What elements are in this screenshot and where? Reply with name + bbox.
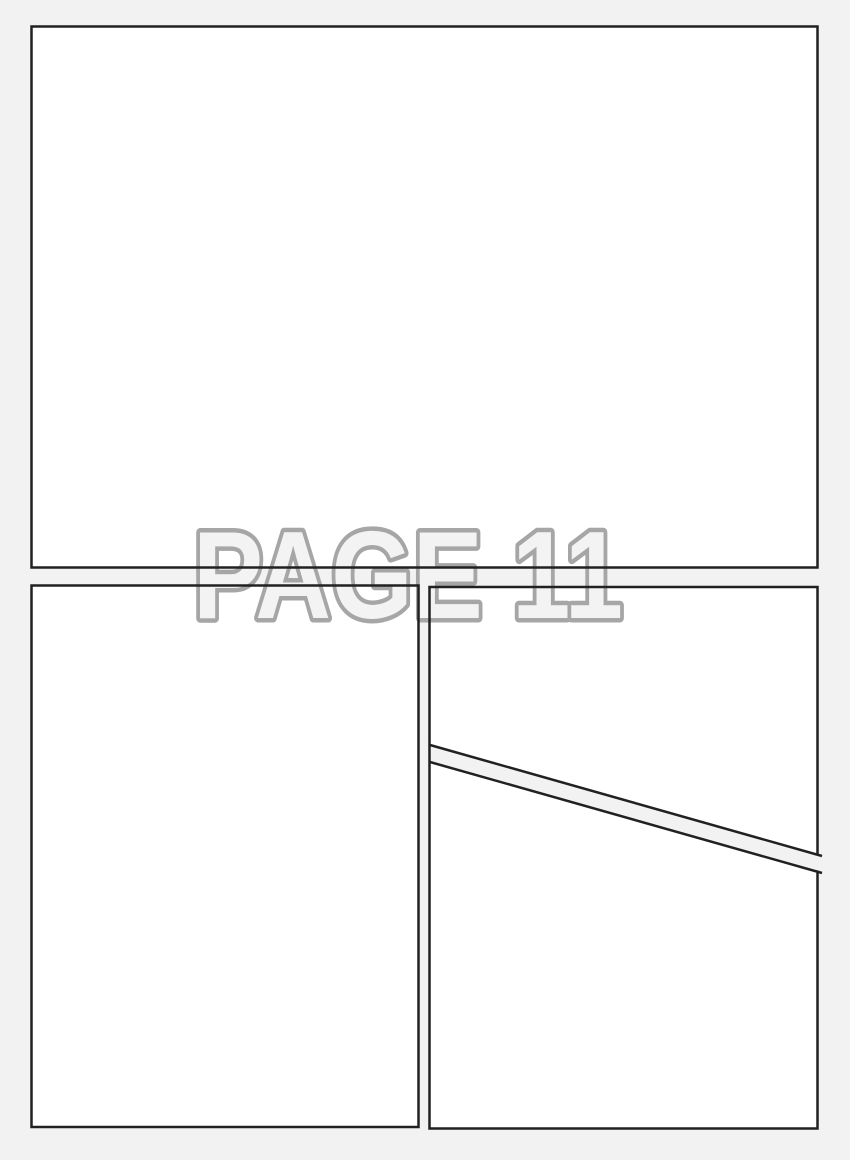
panel-bottom-left[interactable] — [32, 586, 419, 1128]
comic-page-template: PAGE 11 — [0, 0, 850, 1160]
page-number-label: PAGE 11 — [193, 507, 623, 645]
panel-top[interactable] — [32, 27, 818, 568]
panel-bottom-right[interactable] — [430, 587, 818, 1129]
